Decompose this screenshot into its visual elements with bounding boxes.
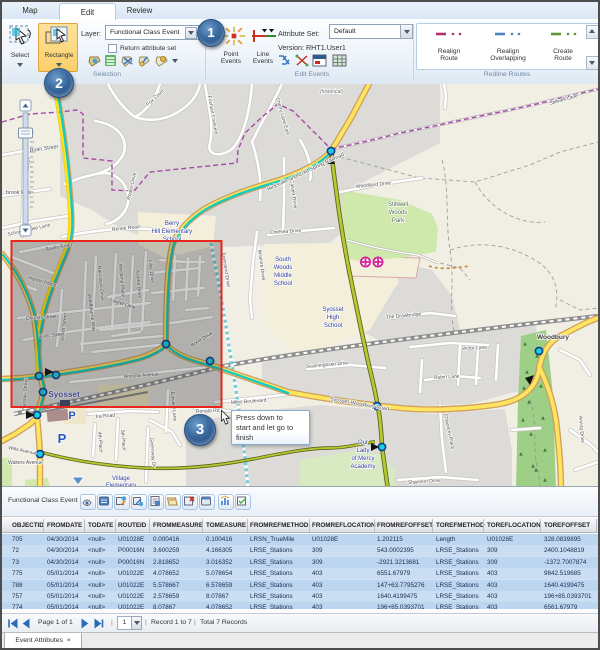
svg-text:School: School <box>274 281 292 287</box>
svg-text:of Mercy: of Mercy <box>351 456 374 462</box>
svg-text:Lady: Lady <box>356 448 369 454</box>
svg-text:P: P <box>58 431 67 446</box>
svg-text:(historical): (historical) <box>320 89 343 95</box>
svg-text:P: P <box>68 410 75 422</box>
svg-text:Syosset: Syosset <box>322 307 344 313</box>
svg-text:Our: Our <box>358 440 368 446</box>
svg-text:Woodbury: Woodbury <box>537 334 569 341</box>
svg-text:Woods: Woods <box>389 210 408 216</box>
svg-text:Academy: Academy <box>350 464 375 470</box>
svg-text:Village: Village <box>112 476 131 482</box>
svg-text:Berry: Berry <box>165 221 179 227</box>
svg-text:South: South <box>275 257 291 263</box>
svg-text:Hill Elementary: Hill Elementary <box>152 229 192 235</box>
svg-text:High: High <box>327 315 339 321</box>
svg-text:Walters Avenue: Walters Avenue <box>8 460 43 466</box>
svg-text:Stillwell: Stillwell <box>388 202 408 208</box>
svg-text:School: School <box>324 323 342 329</box>
svg-text:Park: Park <box>392 218 405 224</box>
svg-text:Woods: Woods <box>274 265 293 271</box>
svg-text:Middle: Middle <box>274 273 292 279</box>
